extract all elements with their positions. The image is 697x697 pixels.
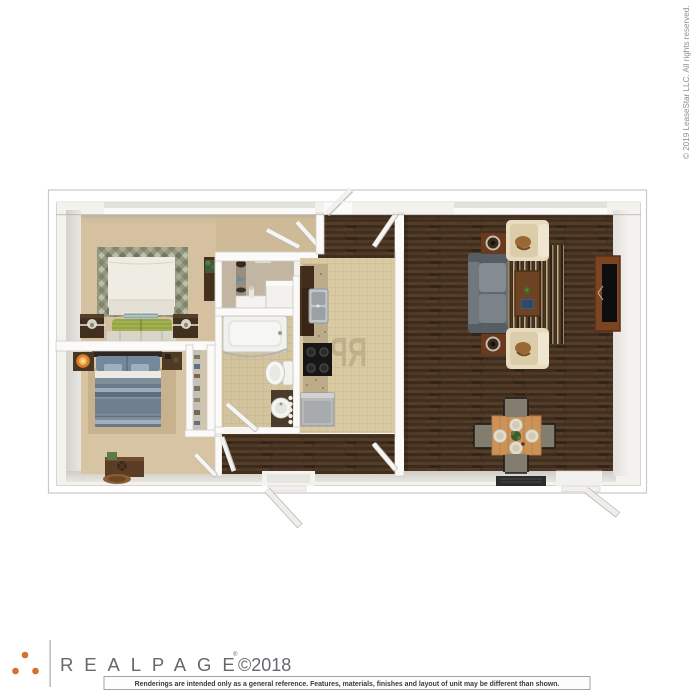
svg-text:©2018: ©2018 <box>238 655 291 675</box>
svg-text:REALPAGE: REALPAGE <box>60 654 246 675</box>
svg-text:Renderings are intended only a: Renderings are intended only as a genera… <box>135 681 560 688</box>
svg-text:RP: RP <box>330 329 367 375</box>
svg-text:© 2019 LeaseStar LLC. All righ: © 2019 LeaseStar LLC. All rights reserve… <box>682 5 691 159</box>
